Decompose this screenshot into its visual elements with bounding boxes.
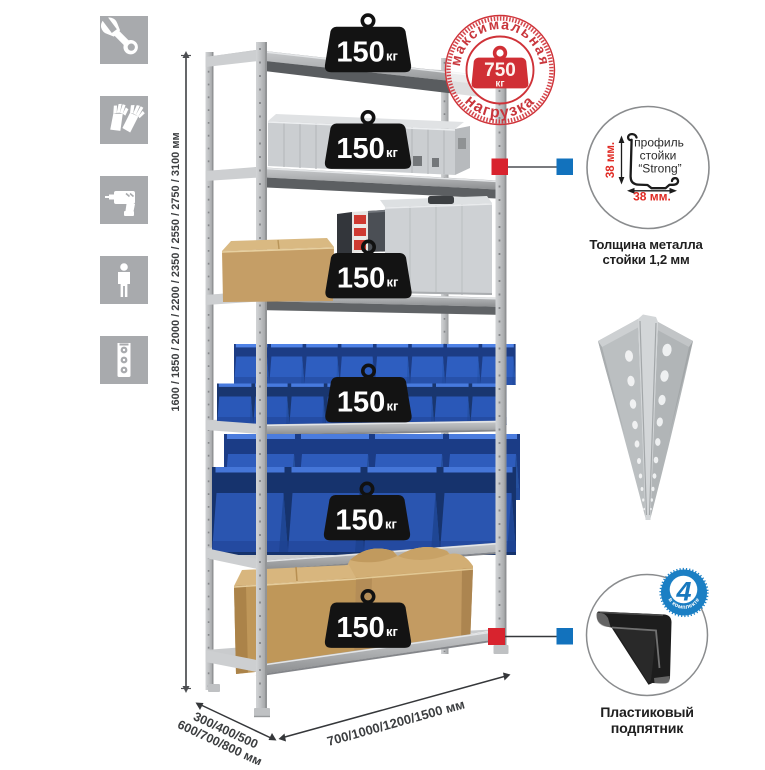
svg-text:38 мм.: 38 мм. [633, 190, 671, 204]
svg-text:Пластиковый: Пластиковый [600, 705, 694, 721]
svg-text:стойки 1,2 мм: стойки 1,2 мм [602, 252, 689, 267]
svg-text:профиль: профиль [634, 136, 684, 150]
svg-text:подпятник: подпятник [611, 721, 685, 737]
svg-text:“Strong”: “Strong” [638, 162, 681, 176]
svg-text:стойки: стойки [640, 149, 677, 163]
svg-text:кг: кг [495, 79, 504, 90]
svg-text:38 мм.: 38 мм. [605, 142, 617, 178]
svg-text:1600 / 1850 / 2000 / 2200 / 23: 1600 / 1850 / 2000 / 2200 / 2350 / 2550 … [170, 132, 182, 411]
svg-text:Толщина металла: Толщина металла [589, 237, 703, 252]
